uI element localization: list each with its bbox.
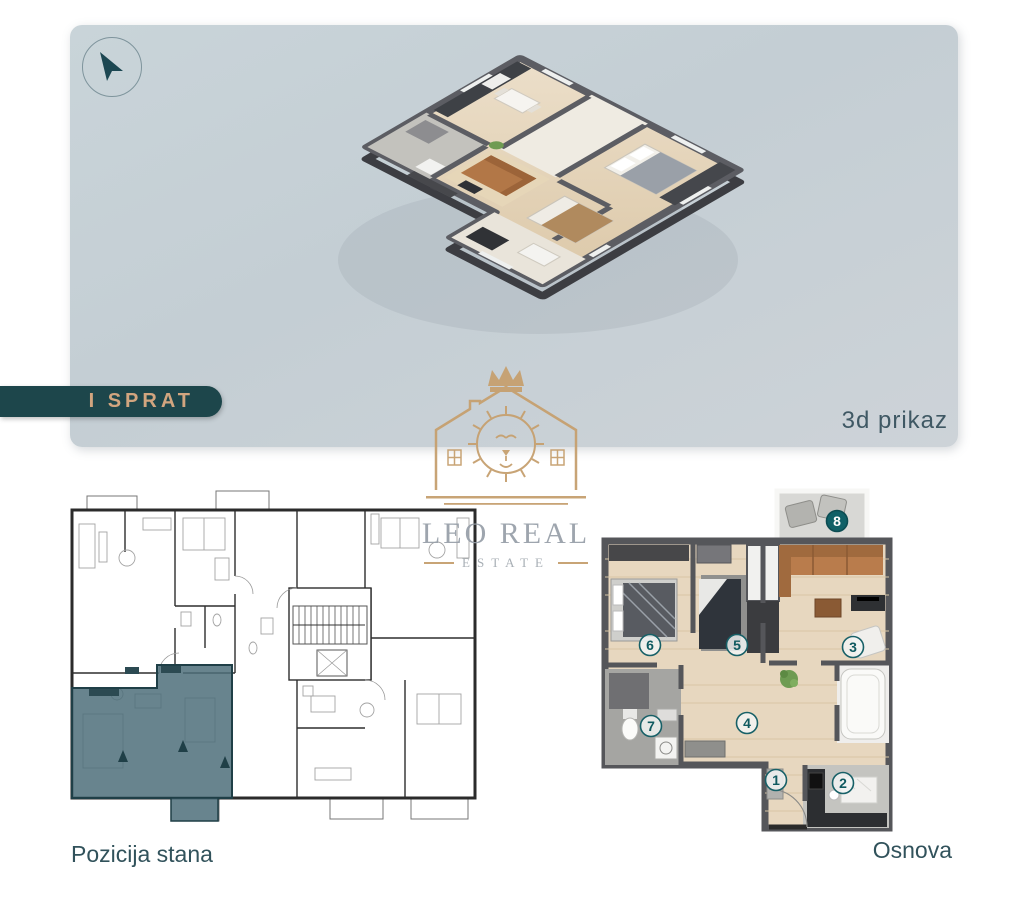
svg-text:1: 1	[772, 772, 780, 788]
watermark-subtitle: ESTATE	[462, 555, 550, 571]
room-badge-3: 3	[843, 637, 864, 658]
floor-banner: I SPRAT	[0, 386, 222, 417]
caption-osnova: Osnova	[873, 837, 952, 864]
svg-text:8: 8	[833, 513, 841, 529]
stair-core	[289, 588, 371, 680]
terrace	[777, 491, 867, 543]
room-badge-8: 8	[827, 511, 848, 532]
osnova-plan: 6 5 3 7 4 1 2	[601, 483, 893, 833]
room-badge-6: 6	[640, 635, 661, 656]
svg-text:2: 2	[839, 775, 847, 791]
highlighted-apartment	[72, 665, 232, 821]
real-estate-flyer: 3d prikaz I SPRAT	[0, 0, 1014, 900]
svg-text:3: 3	[849, 639, 857, 655]
svg-text:4: 4	[743, 715, 751, 731]
svg-text:7: 7	[647, 718, 655, 734]
cursor-arrow-icon	[82, 37, 142, 97]
room-badge-4: 4	[737, 713, 758, 734]
caption-3d-prikaz: 3d prikaz	[842, 407, 948, 435]
watermark-rule-right	[558, 562, 588, 564]
watermark-title: LEO REAL	[418, 517, 594, 551]
agency-watermark: LEO REAL ESTATE	[418, 360, 594, 571]
room-badge-2: 2	[833, 773, 854, 794]
room-badge-7: 7	[641, 716, 662, 737]
room-badge-1: 1	[766, 770, 787, 791]
svg-text:5: 5	[733, 637, 741, 653]
room-badge-5: 5	[727, 635, 748, 656]
watermark-rule-left	[424, 562, 454, 564]
svg-text:6: 6	[646, 637, 654, 653]
render-3d-floorplan	[310, 28, 750, 363]
lion-crown-house-logo-icon	[418, 360, 594, 510]
caption-pozicija-stana: Pozicija stana	[71, 841, 213, 868]
